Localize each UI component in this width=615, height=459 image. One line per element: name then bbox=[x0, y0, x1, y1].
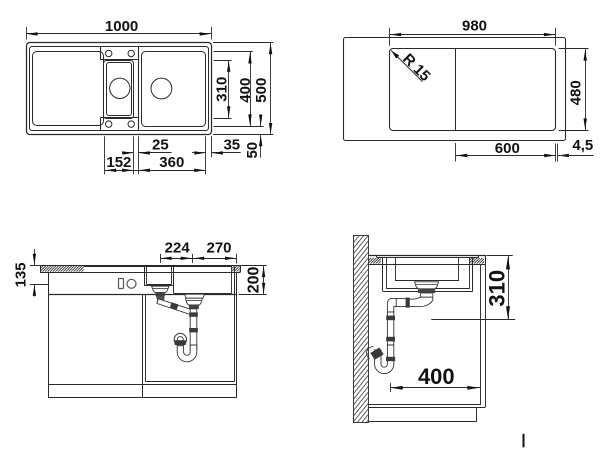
svg-text:152: 152 bbox=[106, 154, 131, 171]
svg-text:4,5: 4,5 bbox=[572, 137, 593, 154]
svg-text:50: 50 bbox=[244, 142, 261, 159]
svg-text:500: 500 bbox=[253, 78, 270, 103]
svg-text:310: 310 bbox=[485, 270, 510, 307]
svg-text:310: 310 bbox=[213, 77, 230, 102]
svg-text:360: 360 bbox=[159, 154, 184, 171]
svg-text:1000: 1000 bbox=[105, 18, 138, 35]
svg-text:270: 270 bbox=[206, 240, 231, 257]
svg-text:400: 400 bbox=[237, 78, 254, 103]
svg-text:200: 200 bbox=[246, 266, 263, 293]
svg-text:600: 600 bbox=[495, 140, 520, 157]
svg-text:980: 980 bbox=[462, 17, 487, 34]
svg-text:480: 480 bbox=[567, 80, 584, 105]
svg-text:400: 400 bbox=[418, 364, 455, 389]
svg-text:35: 35 bbox=[223, 136, 240, 153]
svg-text:224: 224 bbox=[165, 240, 191, 257]
svg-text:135: 135 bbox=[13, 262, 30, 287]
svg-text:25: 25 bbox=[152, 136, 169, 153]
